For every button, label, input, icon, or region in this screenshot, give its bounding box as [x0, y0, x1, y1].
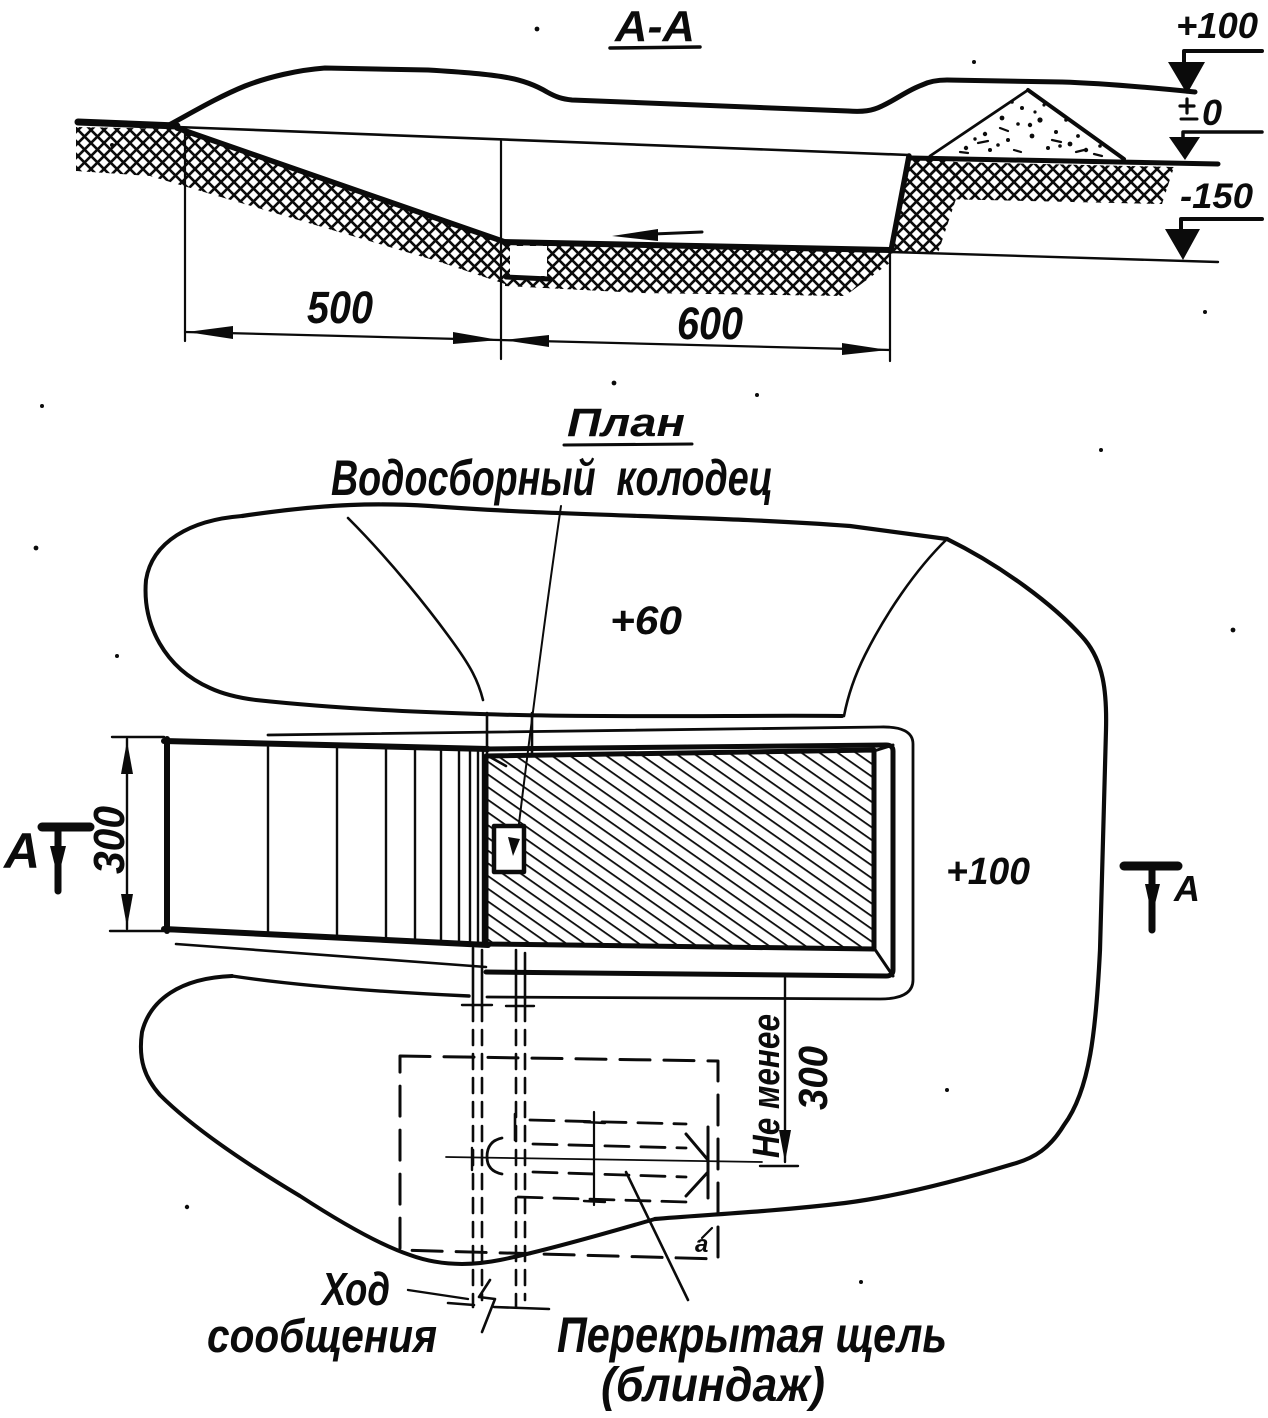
- svg-text:Перекрытая щель: Перекрытая щель: [557, 1307, 947, 1363]
- svg-text:а: а: [695, 1231, 708, 1258]
- svg-text:А: А: [1173, 868, 1200, 909]
- svg-text:500: 500: [307, 282, 373, 333]
- svg-text:А-А: А-А: [614, 2, 695, 51]
- svg-text:сообщения: сообщения: [207, 1309, 437, 1362]
- svg-text:300: 300: [85, 806, 134, 874]
- svg-text:Водосборный колодец: Водосборный колодец: [331, 450, 773, 506]
- svg-text:0: 0: [1202, 92, 1222, 133]
- svg-text:-150: -150: [1180, 177, 1254, 216]
- svg-text:600: 600: [677, 298, 743, 349]
- svg-text:(блиндаж): (блиндаж): [601, 1359, 825, 1412]
- svg-text:Ход: Ход: [320, 1263, 390, 1315]
- svg-text:Не менее: Не менее: [746, 1014, 788, 1158]
- svg-text:План: План: [567, 401, 685, 445]
- svg-text:300: 300: [790, 1046, 836, 1110]
- svg-text:+100: +100: [946, 851, 1030, 893]
- svg-text:А: А: [2, 823, 40, 879]
- svg-text:+60: +60: [610, 599, 682, 643]
- svg-text:+100: +100: [1176, 5, 1258, 46]
